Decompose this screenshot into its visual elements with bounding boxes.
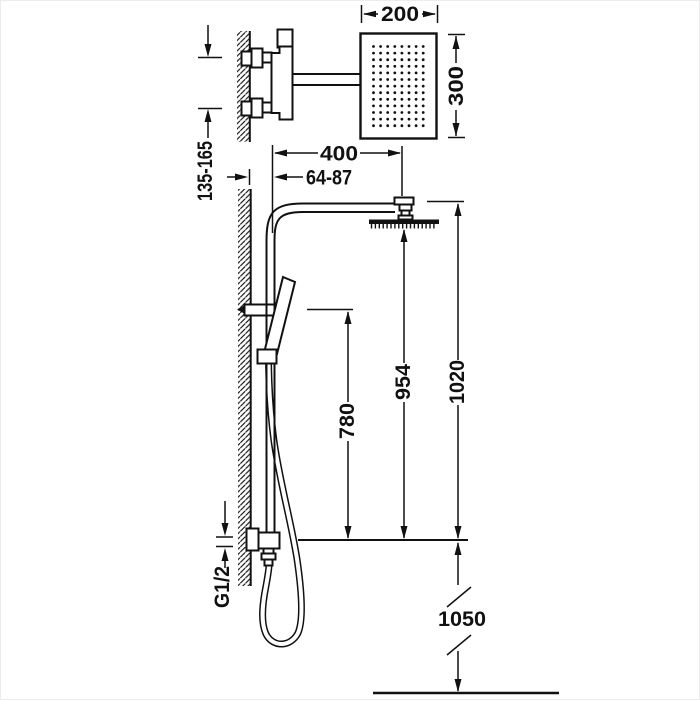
valve-inlet-upper — [242, 49, 272, 68]
drawing-page: 200 300 135-165 — [0, 0, 700, 700]
riser-and-gooseneck — [267, 204, 396, 533]
rain-head-side — [369, 220, 439, 229]
dimension-riser-offset: 64-87 — [227, 167, 352, 190]
nozzle-ticks — [372, 224, 434, 229]
inlet-spacing-label: 135-165 — [194, 141, 217, 201]
dimension-head-depth: 300 — [445, 35, 468, 138]
shower-drawing: 200 300 135-165 — [1, 1, 700, 701]
rain-head-top — [361, 34, 437, 139]
valve-inlet-lower — [242, 99, 272, 118]
thread-label: G1/2 — [211, 566, 234, 608]
dimension-inlet-spacing: 135-165 — [194, 25, 222, 201]
head-depth-label: 300 — [445, 66, 468, 106]
slider-holder — [258, 350, 277, 364]
wall-section-side — [238, 189, 251, 586]
riser-offset-label: 64-87 — [306, 167, 352, 190]
wall-section-top — [237, 31, 250, 142]
side-view: 400 64-87 780 954 — [211, 143, 559, 694]
dimension-thread: G1/2 — [211, 501, 234, 608]
projection-label: 400 — [320, 143, 358, 166]
shower-arm-top — [292, 74, 361, 85]
head-connector — [395, 198, 414, 220]
shower-hose — [263, 353, 302, 644]
spray-face-height-label: 954 — [392, 364, 415, 400]
overall-height-label: 1020 — [446, 360, 469, 404]
thermostatic-valve-body — [272, 30, 293, 120]
dimension-supply-height: 1050 — [436, 542, 488, 692]
dimension-overall-height: 1020 — [427, 202, 469, 540]
head-width-label: 200 — [381, 3, 419, 26]
handle-height-label: 780 — [336, 403, 359, 439]
dimension-head-width: 200 — [362, 3, 438, 26]
dimension-handle-height: 780 — [307, 310, 359, 540]
supply-height-label: 1050 — [438, 608, 486, 631]
dimension-spray-face-height: 954 — [392, 229, 415, 539]
